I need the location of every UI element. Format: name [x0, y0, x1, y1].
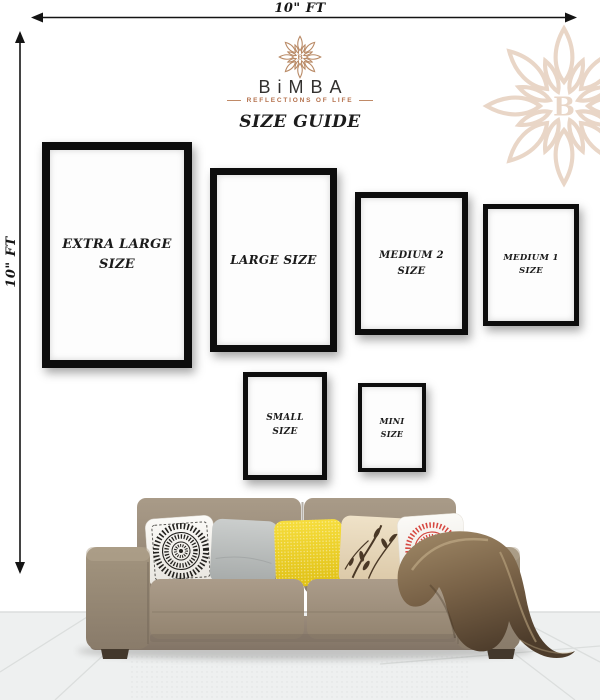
- left-dimension-label: 10" FT: [4, 232, 24, 292]
- sofa-arms: [86, 547, 520, 649]
- tagline-rule-right: [359, 100, 373, 101]
- frame-label-line: MEDIUM 2: [379, 248, 444, 264]
- frame-mini-label: MINI SIZE: [380, 415, 405, 440]
- plain-gray-pillow: [209, 518, 278, 585]
- sofa-legs: [101, 649, 515, 659]
- frame-medium-2: MEDIUM 2 SIZE: [355, 192, 468, 335]
- frame-mini: MINI SIZE: [358, 383, 426, 472]
- throw-blanket: [398, 531, 575, 658]
- tagline-rule-left: [227, 100, 241, 101]
- brand-tagline-text: REFLECTIONS OF LIFE: [247, 97, 354, 104]
- sofa-shadow: [77, 642, 533, 660]
- frame-medium-1: MEDIUM 1 SIZE: [483, 204, 579, 326]
- frame-label-line: SIZE: [397, 264, 425, 280]
- sofa-base: [90, 616, 516, 650]
- brand-tagline: REFLECTIONS OF LIFE: [0, 97, 600, 104]
- frame-small: SMALL SIZE: [243, 372, 327, 480]
- frame-label-line: SIZE: [272, 426, 297, 440]
- frame-small-label: SMALL SIZE: [266, 412, 304, 440]
- yellow-textured-pillow: [274, 519, 344, 587]
- frame-label-line: LARGE SIZE: [230, 251, 316, 270]
- sofa: [77, 498, 575, 660]
- frame-label-line: SIZE: [519, 265, 543, 278]
- cream-floral-pillow: [338, 515, 413, 587]
- black-mandala-pillow: [145, 515, 218, 588]
- frame-label-line: MEDIUM 1: [503, 252, 558, 265]
- bimba-flower-logo-icon: [277, 34, 323, 80]
- frame-extra-large-label: EXTRA LARGE SIZE: [62, 235, 171, 275]
- frame-large: LARGE SIZE: [210, 168, 337, 352]
- frame-extra-large: EXTRA LARGE SIZE: [42, 142, 192, 368]
- frame-medium-1-label: MEDIUM 1 SIZE: [503, 252, 558, 278]
- frame-label-line: SMALL: [266, 412, 304, 426]
- frame-large-label: LARGE SIZE: [230, 251, 316, 270]
- frame-label-line: SIZE: [99, 255, 135, 275]
- frame-medium-2-label: MEDIUM 2 SIZE: [379, 248, 444, 279]
- top-dimension-label: 10" FT: [0, 1, 600, 16]
- tiled-floor: [0, 612, 600, 700]
- frame-label-line: MINI: [380, 415, 405, 427]
- frame-label-line: EXTRA LARGE: [62, 235, 171, 255]
- sofa-seat-cushions: [150, 579, 457, 642]
- sofa-backrest: [137, 498, 456, 594]
- frame-label-line: SIZE: [381, 428, 404, 440]
- size-guide-poster: B 10" FT 10" FT BiMBA REFLECTIONS OF LIF…: [0, 0, 600, 700]
- red-mandala-pillow: [397, 513, 468, 585]
- size-guide-heading: SIZE GUIDE: [0, 112, 600, 132]
- bimba-flower-watermark-icon: [478, 20, 600, 192]
- brand-name: BiMBA: [0, 77, 600, 98]
